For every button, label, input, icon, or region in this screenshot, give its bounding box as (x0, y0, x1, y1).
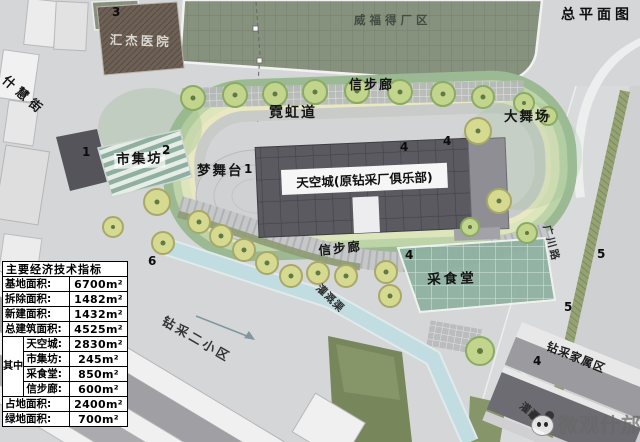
table-row: 绿地面积: 700m² (3, 412, 128, 427)
marker-3: 3 (112, 6, 120, 18)
label-stroll-gallery-top: 信步廊 (349, 79, 394, 92)
table-row: 拆除面积: 1482m² (3, 292, 128, 307)
indicators-table: 主要经济技术指标 基地面积: 6700m² 拆除面积: 1482m² 新建面积:… (2, 261, 128, 427)
marker-6a: 6 (148, 255, 156, 267)
marker-2: 2 (162, 144, 170, 156)
table-row: 其中 天空城: 2830m² (3, 337, 128, 352)
label-factory-area: 威福得厂区 (354, 15, 432, 27)
label-dining-hall: 采食堂 (427, 272, 477, 287)
marker-5a: 5 (597, 248, 605, 260)
label-sky-city: 天空城(原钻采厂俱乐部) (296, 166, 433, 191)
table-group-label: 其中 (3, 337, 24, 397)
plan-title: 总平面图 (561, 8, 633, 22)
label-dream-stage: 梦舞台 (197, 165, 244, 179)
watermark: 微观什邡 (528, 409, 640, 438)
label-neon-way: 霓虹道 (269, 106, 317, 120)
table-header: 主要经济技术指标 (3, 262, 128, 277)
marker-1b: 1 (244, 163, 252, 175)
marker-4b: 4 (443, 135, 451, 147)
watermark-text: 微观什邡 (558, 409, 640, 438)
label-market-fair: 市集坊 (114, 151, 165, 168)
site-plan: 总平面图 汇杰医院 威福得厂区 什慧街 霓虹道 信步廊 大舞场 市集坊 梦舞台 … (0, 0, 640, 442)
marker-4a: 4 (400, 141, 408, 153)
marker-1a: 1 (82, 146, 90, 158)
label-dance-plaza: 大舞场 (504, 111, 551, 125)
table-row: 新建面积: 1432m² (3, 307, 128, 322)
table-row: 基地面积: 6700m² (3, 277, 128, 292)
marker-5b: 5 (564, 301, 572, 313)
table-row: 总建筑面积: 4525m² (3, 322, 128, 337)
panda-logo-icon (528, 411, 555, 436)
table-row: 占地面积: 2400m² (3, 397, 128, 412)
label-hospital: 汇杰医院 (110, 34, 172, 49)
marker-4d: 4 (533, 355, 541, 367)
marker-4c: 4 (405, 249, 413, 261)
